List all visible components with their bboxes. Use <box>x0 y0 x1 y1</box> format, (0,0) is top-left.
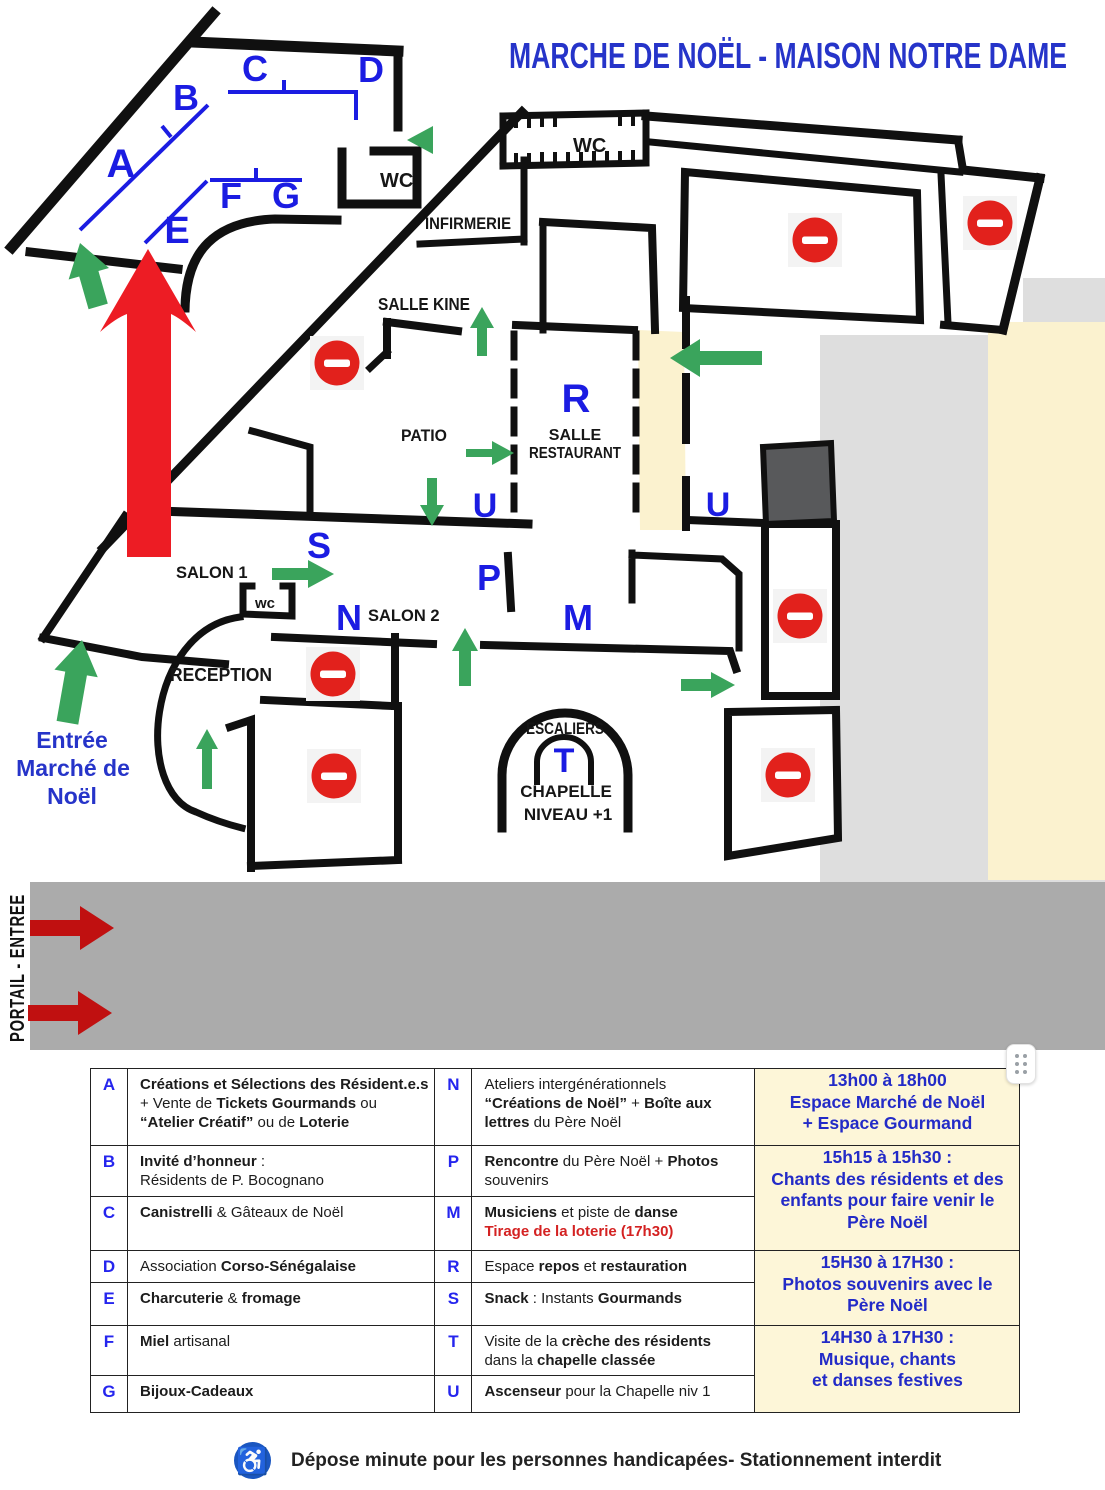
legend-text-segment: du Père Noël <box>529 1114 621 1131</box>
legend-letter-cell: R <box>435 1251 472 1283</box>
legend-text-segment: Loterie <box>299 1114 349 1131</box>
schedule-line: et danses festives <box>756 1370 1018 1392</box>
legend-desc-cell: Canistrelli & Gâteaux de Noël <box>128 1197 435 1251</box>
drag-handle[interactable] <box>1006 1044 1036 1084</box>
legend-desc-cell: Ascenseur pour la Chapelle niv 1 <box>472 1376 755 1413</box>
legend-text-segment: + Vente de <box>140 1095 216 1112</box>
legend-desc-cell: Visite de la crèche des résidentsdans la… <box>472 1326 755 1376</box>
reception-curved-wall <box>158 617 242 828</box>
legend-text-segment: lettres <box>484 1114 529 1131</box>
marker-D: D <box>358 49 384 90</box>
legend: ACréations et Sélections des Résident.e.… <box>90 1068 1020 1413</box>
no-entry-sign <box>307 749 361 803</box>
legend-desc-cell: Bijoux-Cadeaux <box>128 1376 435 1413</box>
legend-letter-cell: G <box>91 1376 128 1413</box>
legend-desc-cell: Rencontre du Père Noël + Photossouvenirs <box>472 1146 755 1197</box>
curved-wall <box>185 219 337 308</box>
wall-segment <box>944 325 1003 330</box>
green-up-arrow <box>60 237 119 312</box>
legend-text-segment: dans la <box>484 1352 537 1369</box>
footer-note: ♿ Dépose minute pour les personnes handi… <box>234 1442 941 1479</box>
legend-text-segment: repos <box>539 1258 580 1275</box>
schedule-cell: 15H30 à 17H30 :Photos souvenirs avec leP… <box>755 1251 1020 1326</box>
legend-text-segment: Musiciens <box>484 1204 557 1221</box>
legend-text-segment: crèche des résidents <box>562 1333 711 1350</box>
schedule-line: Chants des résidents et des <box>756 1169 1018 1191</box>
legend-text-segment: ou <box>356 1095 377 1112</box>
portal-driveway-band <box>30 882 1105 1050</box>
wall-segment <box>632 553 739 648</box>
legend-text-segment: Résidents de P. Bocognano <box>140 1172 324 1189</box>
no-entry-sign <box>761 748 815 802</box>
schedule-cell: 13h00 à 18h00Espace Marché de Noël+ Espa… <box>755 1069 1020 1146</box>
wall-segment <box>941 174 948 323</box>
legend-text-segment: “Créations de Noël” <box>484 1095 627 1112</box>
restaurant-label: SALLE <box>549 427 602 444</box>
marker-A: A <box>107 142 136 186</box>
marker-R: R <box>562 377 591 421</box>
legend-letter-cell: C <box>91 1197 128 1251</box>
legend-text-segment: restauration <box>600 1258 687 1275</box>
legend-text-segment: ou de <box>253 1114 299 1131</box>
legend-text-segment: + <box>627 1095 644 1112</box>
entree-label: Entrée <box>36 727 108 753</box>
legend-text-segment: & Gâteaux de Noël <box>213 1204 344 1221</box>
legend-letter-cell: S <box>435 1283 472 1326</box>
legend-text-segment: : <box>257 1153 265 1170</box>
right-yellow-area <box>988 322 1105 880</box>
legend-text-segment: fromage <box>242 1290 301 1307</box>
salle-kine-walls <box>387 322 458 355</box>
legend-text-segment: Photos <box>667 1153 718 1170</box>
schedule-line: 13h00 à 18h00 <box>756 1070 1018 1092</box>
legend-letter-cell: N <box>435 1069 472 1146</box>
legend-text-segment: Tickets Gourmands <box>216 1095 356 1112</box>
schedule-line: Photos souvenirs avec le <box>756 1274 1018 1296</box>
legend-text-segment: Ascenseur <box>484 1383 561 1400</box>
no-entry-sign <box>310 336 364 390</box>
schedule-line: Espace Marché de Noël <box>756 1092 1018 1114</box>
legend-text-segment: Miel <box>140 1333 169 1350</box>
legend-text-segment: Snack <box>484 1290 528 1307</box>
green-right-arrow <box>681 672 735 698</box>
legend-letter-cell: A <box>91 1069 128 1146</box>
legend-desc-cell: Snack : Instants Gourmands <box>472 1283 755 1326</box>
patio-label: PATIO <box>401 426 447 445</box>
green-up-arrow <box>470 307 494 356</box>
legend-letter-cell: B <box>91 1146 128 1197</box>
legend-text-segment: “Atelier Créatif” <box>140 1114 253 1131</box>
legend-row: BInvité d’honneur :Résidents de P. Bocog… <box>91 1146 1020 1197</box>
legend-text-segment: Association <box>140 1258 221 1275</box>
stall-tick <box>162 126 171 137</box>
small-wc-label: wc <box>254 595 275 612</box>
legend-letter-cell: U <box>435 1376 472 1413</box>
salon2-label: SALON 2 <box>368 607 440 625</box>
no-entry-sign <box>773 589 827 643</box>
marker-B: B <box>173 77 199 118</box>
schedule-cell: 14H30 à 17H30 :Musique, chantset danses … <box>755 1326 1020 1413</box>
wall-segment <box>646 116 958 140</box>
legend-desc-cell: Miel artisanal <box>128 1326 435 1376</box>
legend-text-segment: Tirage de la loterie (17h30) <box>484 1223 673 1240</box>
wheelchair-icon: ♿ <box>234 1442 271 1479</box>
legend-text-segment: Rencontre <box>484 1153 558 1170</box>
market-wc-label: WC <box>380 170 413 192</box>
marker-P: P <box>477 557 501 598</box>
marker-N: N <box>336 597 362 638</box>
legend-row: ACréations et Sélections des Résident.e.… <box>91 1069 1020 1146</box>
legend-text-segment: Ateliers intergénérationnels <box>484 1076 666 1093</box>
no-entry-sign <box>963 196 1017 250</box>
salon1-label: SALON 1 <box>176 564 248 582</box>
legend-letter-cell: D <box>91 1251 128 1283</box>
legend-text-segment: danse <box>635 1204 678 1221</box>
legend-text-segment: Boîte aux <box>644 1095 712 1112</box>
legend-desc-cell: Association Corso-Sénégalaise <box>128 1251 435 1283</box>
legend-text-segment: artisanal <box>169 1333 230 1350</box>
wall-segment <box>516 325 634 330</box>
green-up-arrow <box>452 628 478 686</box>
legend-desc-cell: Musiciens et piste de danseTirage de la … <box>472 1197 755 1251</box>
escaliers-label: ESCALIERS <box>526 720 604 738</box>
marker-U: U <box>473 487 498 525</box>
schedule-line: Musique, chants <box>756 1349 1018 1371</box>
wall-segment <box>370 352 387 368</box>
green-up-arrow <box>196 729 218 789</box>
marker-G: G <box>272 175 300 216</box>
legend-text-segment: Espace <box>484 1258 538 1275</box>
marker-E: E <box>164 210 189 252</box>
schedule-line: Père Noël <box>756 1295 1018 1317</box>
legend-letter-cell: F <box>91 1326 128 1376</box>
entree-label: Marché de <box>16 755 130 781</box>
legend-text-segment: Bijoux-Cadeaux <box>140 1383 253 1400</box>
marker-M: M <box>563 597 593 638</box>
marker-F: F <box>220 175 242 216</box>
schedule-line: 15H30 à 17H30 : <box>756 1252 1018 1274</box>
legend-text-segment: pour la Chapelle niv 1 <box>561 1383 710 1400</box>
wall-segment <box>508 556 511 608</box>
page-title: MARCHE DE NOËL - MAISON NOTRE DAME <box>509 35 1067 76</box>
legend-text-segment: Corso-Sénégalaise <box>221 1258 356 1275</box>
marker-T: T <box>554 742 575 780</box>
footer-note-text: Dépose minute pour les personnes handica… <box>291 1450 941 1472</box>
marker-S: S <box>307 525 331 566</box>
schedule-line: 15h15 à 15h30 : <box>756 1147 1018 1169</box>
legend-letter-cell: M <box>435 1197 472 1251</box>
salle-kine-label: SALLE KINE <box>378 294 470 314</box>
legend-text-segment: : Instants <box>529 1290 598 1307</box>
legend-row: DAssociation Corso-SénégalaiseREspace re… <box>91 1251 1020 1283</box>
legend-desc-cell: Ateliers intergénérationnels“Créations d… <box>472 1069 755 1146</box>
legend-desc-cell: Charcuterie & fromage <box>128 1283 435 1326</box>
niveau-label: NIVEAU +1 <box>524 805 612 824</box>
legend-row: FMiel artisanalTVisite de la crèche des … <box>91 1326 1020 1376</box>
schedule-cell: 15h15 à 15h30 :Chants des résidents et d… <box>755 1146 1020 1251</box>
main-wc-label: WC <box>573 135 606 157</box>
legend-desc-cell: Créations et Sélections des Résident.e.s… <box>128 1069 435 1146</box>
corridor-wall <box>650 142 960 172</box>
no-entry-sign <box>306 647 360 701</box>
legend-text-segment: Invité d’honneur <box>140 1153 257 1170</box>
floorplan-page: MARCHE DE NOËL - MAISON NOTRE DAME A B C… <box>0 0 1105 1490</box>
schedule-line: Père Noël <box>756 1212 1018 1234</box>
restaurant-label: RESTAURANT <box>529 445 621 462</box>
legend-text-segment: du Père Noël + <box>559 1153 668 1170</box>
legend-letter-cell: P <box>435 1146 472 1197</box>
no-entry-sign <box>788 213 842 267</box>
wall-segment <box>43 516 125 638</box>
wall-segment <box>420 239 524 244</box>
legend-text-segment: Charcuterie <box>140 1290 223 1307</box>
legend-text-segment: Créations et Sélections des Résident.e.s <box>140 1076 428 1093</box>
reception-label: RECEPTION <box>170 665 272 685</box>
wall-segment <box>543 222 655 330</box>
green-right-arrow <box>466 441 514 465</box>
elevator-block <box>763 443 834 524</box>
schedule-line: enfants pour faire venir le <box>756 1190 1018 1212</box>
wall-segment <box>252 431 310 517</box>
legend-letter-cell: E <box>91 1283 128 1326</box>
legend-desc-cell: Invité d’honneur :Résidents de P. Bocogn… <box>128 1146 435 1197</box>
legend-letter-cell: T <box>435 1326 472 1376</box>
chapelle-label: CHAPELLE <box>520 782 612 801</box>
marker-U: U <box>706 486 731 524</box>
portail-label: PORTAIL - ENTREE <box>7 894 29 1042</box>
schedule-line: + Espace Gourmand <box>756 1113 1018 1135</box>
floorplan-map: MARCHE DE NOËL - MAISON NOTRE DAME A B C… <box>0 0 1105 1060</box>
legend-text-segment: Visite de la <box>484 1333 561 1350</box>
legend-text-segment: Canistrelli <box>140 1204 213 1221</box>
legend-text-segment: et <box>580 1258 601 1275</box>
entree-label: Noël <box>47 783 97 809</box>
legend-text-segment: & <box>223 1290 241 1307</box>
legend-text-segment: souvenirs <box>484 1172 548 1189</box>
infirmerie-label: INFIRMERIE <box>425 214 511 233</box>
legend-text-segment: et piste de <box>557 1204 635 1221</box>
legend-text-segment: Gourmands <box>598 1290 682 1307</box>
schedule-line: 14H30 à 17H30 : <box>756 1327 1018 1349</box>
legend-table: ACréations et Sélections des Résident.e.… <box>90 1068 1020 1413</box>
legend-text-segment: chapelle classée <box>537 1352 655 1369</box>
marker-C: C <box>242 48 268 89</box>
legend-desc-cell: Espace repos et restauration <box>472 1251 755 1283</box>
